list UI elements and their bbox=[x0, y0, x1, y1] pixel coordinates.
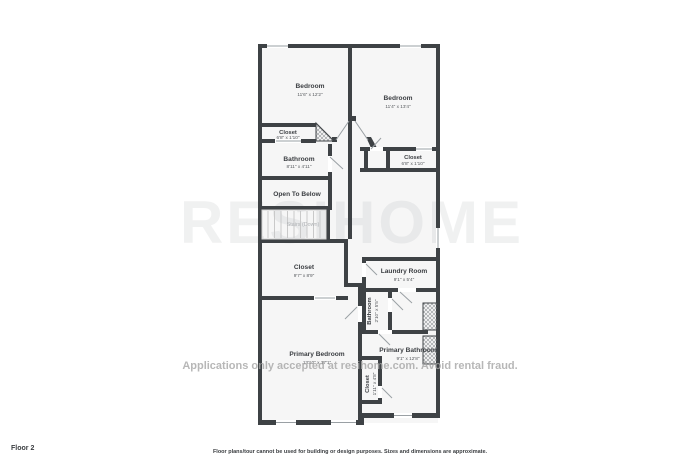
svg-text:Bedroom: Bedroom bbox=[296, 83, 325, 90]
svg-text:Primary Bedroom: Primary Bedroom bbox=[289, 351, 344, 358]
svg-text:9'7" x 8'9": 9'7" x 8'9" bbox=[294, 273, 315, 278]
svg-text:Bedroom: Bedroom bbox=[384, 95, 413, 102]
svg-text:2'10" x 5'5": 2'10" x 5'5" bbox=[374, 299, 379, 322]
disclaimer-text: Floor plans/tour cannot be used for buil… bbox=[213, 449, 487, 455]
room-label-bathroom-1: Bathroom 8'11" x 4'11" bbox=[283, 156, 314, 169]
svg-text:1'11" x 4'8": 1'11" x 4'8" bbox=[372, 372, 377, 395]
svg-text:Open To Below: Open To Below bbox=[273, 191, 321, 198]
svg-text:Closet: Closet bbox=[365, 375, 371, 393]
svg-text:Bathroom: Bathroom bbox=[283, 156, 314, 163]
floor-label: Floor 2 bbox=[11, 445, 34, 452]
svg-text:9'1" x 5'4": 9'1" x 5'4" bbox=[394, 277, 415, 282]
svg-text:8'11" x 4'11": 8'11" x 4'11" bbox=[286, 164, 311, 169]
room-label-closet-2: Closet 6'8" x 1'10" bbox=[401, 155, 424, 166]
room-label-stairs: Stairs (Down) bbox=[287, 222, 320, 228]
svg-text:Bathroom: Bathroom bbox=[367, 297, 373, 324]
svg-text:Closet: Closet bbox=[294, 264, 315, 271]
svg-text:6'8" x 1'10": 6'8" x 1'10" bbox=[276, 135, 299, 140]
svg-text:Primary Bathroom: Primary Bathroom bbox=[379, 347, 437, 354]
svg-text:Stairs (Down): Stairs (Down) bbox=[287, 222, 320, 228]
svg-text:11'4" x 13'4": 11'4" x 13'4" bbox=[385, 104, 411, 109]
svg-text:11'6" x 12'2": 11'6" x 12'2" bbox=[297, 92, 323, 97]
floor-plan-page: RESIHOME bbox=[0, 0, 700, 467]
svg-text:Laundry Room: Laundry Room bbox=[381, 268, 428, 275]
watermark-line: Applications only accepted at resihome.c… bbox=[182, 360, 517, 372]
floor-plan-drawing: RESIHOME bbox=[0, 0, 700, 467]
svg-text:6'8" x 1'10": 6'8" x 1'10" bbox=[401, 161, 424, 166]
room-label-closet-1: Closet 6'8" x 1'10" bbox=[276, 130, 299, 140]
room-label-open-to-below: Open To Below bbox=[273, 191, 321, 198]
